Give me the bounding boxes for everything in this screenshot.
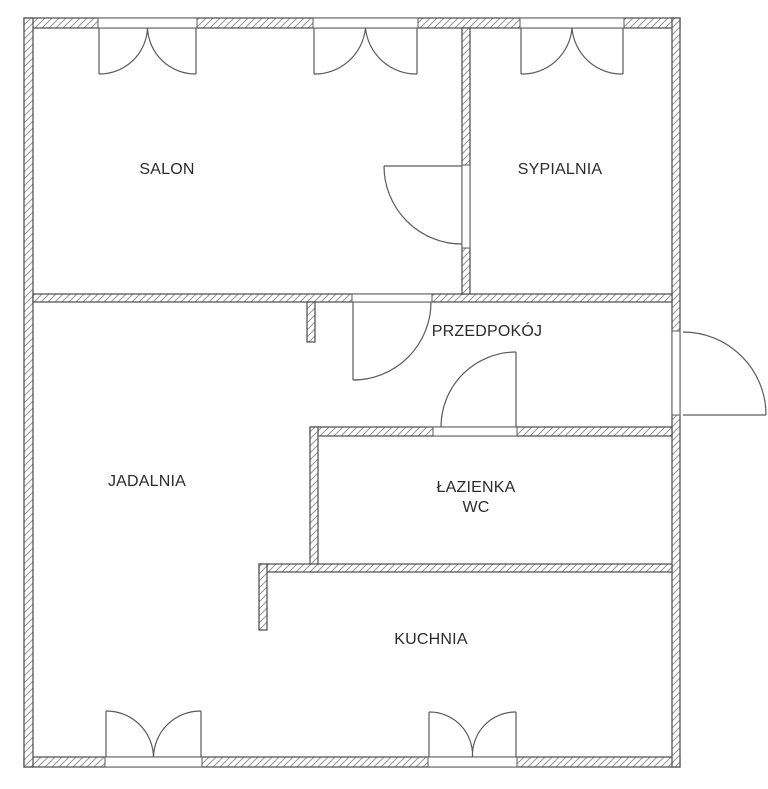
- door-symbol-lazienka: [433, 352, 517, 436]
- room-label-lazienka-line: ŁAZIENKA: [437, 478, 516, 498]
- door-symbol-entrance: [672, 331, 766, 415]
- room-label-przedpokoj: PRZEDPOKÓJ: [432, 322, 542, 342]
- exterior-walls: [24, 18, 680, 767]
- door-symbol-salon-sypialnia: [384, 165, 470, 248]
- interior-wall-stub-przedpokoj: [307, 302, 315, 342]
- room-label-sypialnia: SYPIALNIA: [518, 160, 603, 180]
- window-symbol-salon-right: [313, 18, 418, 74]
- interior-wall-bathroom-bottom: [259, 564, 672, 572]
- window-symbol-jadalnia: [105, 711, 202, 767]
- floor-plan-drawing: [0, 0, 768, 789]
- window-symbol-salon-left: [98, 18, 197, 74]
- window-symbol-sypialnia: [520, 18, 624, 74]
- room-label-wc-line: WC: [437, 498, 516, 518]
- interior-wall-bathroom-left: [310, 427, 318, 572]
- interior-wall-stub-kuchnia: [259, 564, 267, 630]
- room-label-salon: SALON: [139, 160, 194, 180]
- door-symbol-salon-przedpokoj: [352, 294, 432, 380]
- exterior-wall-left: [24, 18, 33, 767]
- room-label-jadalnia: JADALNIA: [108, 472, 186, 492]
- interior-wall-salon-sypialnia: [462, 28, 470, 294]
- room-label-kuchnia: KUCHNIA: [394, 630, 467, 650]
- window-symbols: [98, 18, 624, 767]
- room-label-lazienka-wc: ŁAZIENKA WC: [437, 478, 516, 518]
- floor-plan: SALON SYPIALNIA PRZEDPOKÓJ JADALNIA ŁAZI…: [0, 0, 768, 789]
- window-symbol-kuchnia: [428, 712, 517, 767]
